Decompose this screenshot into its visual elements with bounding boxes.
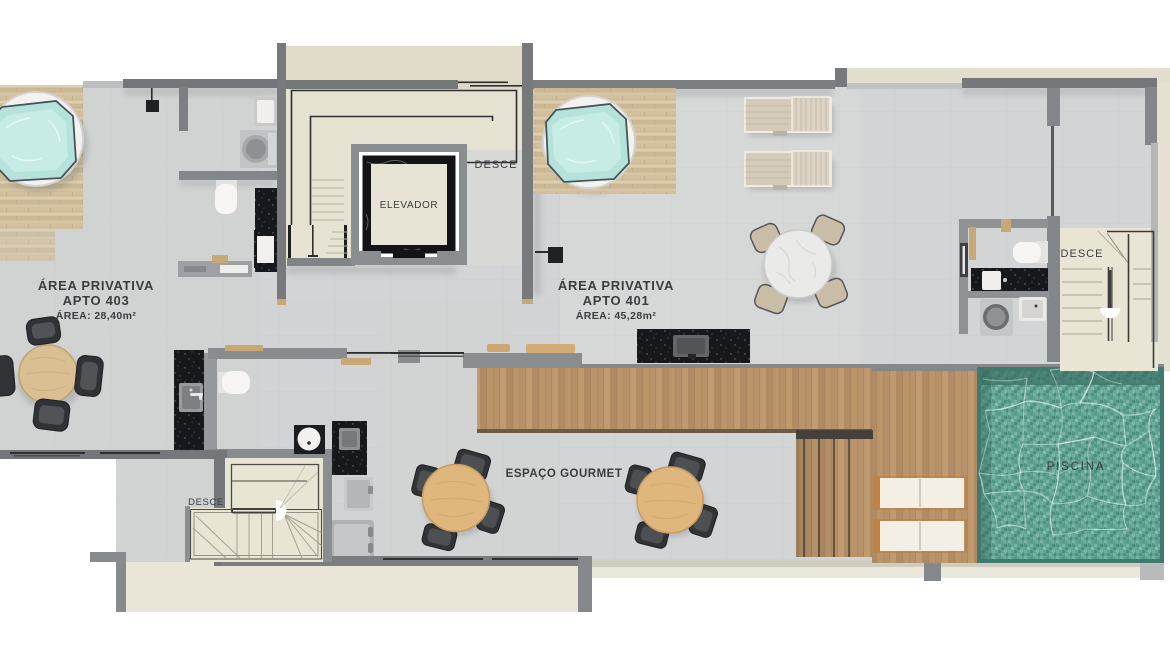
svg-text:APTO 401: APTO 401 — [583, 293, 650, 308]
svg-text:DESCE: DESCE — [188, 497, 224, 508]
svg-text:ELEVADOR: ELEVADOR — [380, 200, 439, 211]
svg-text:PISCINA: PISCINA — [1047, 461, 1106, 473]
svg-text:ESPAÇO GOURMET: ESPAÇO GOURMET — [506, 468, 623, 480]
svg-text:APTO 403: APTO 403 — [63, 293, 130, 308]
svg-text:DESCE: DESCE — [1061, 248, 1104, 260]
svg-text:ÁREA: 28,40m²: ÁREA: 28,40m² — [56, 309, 137, 322]
svg-text:ÁREA: 45,28m²: ÁREA: 45,28m² — [576, 309, 657, 322]
svg-text:ÁREA PRIVATIVA: ÁREA PRIVATIVA — [558, 278, 674, 293]
svg-text:ÁREA PRIVATIVA: ÁREA PRIVATIVA — [38, 278, 154, 293]
svg-text:DESCE: DESCE — [475, 159, 518, 171]
